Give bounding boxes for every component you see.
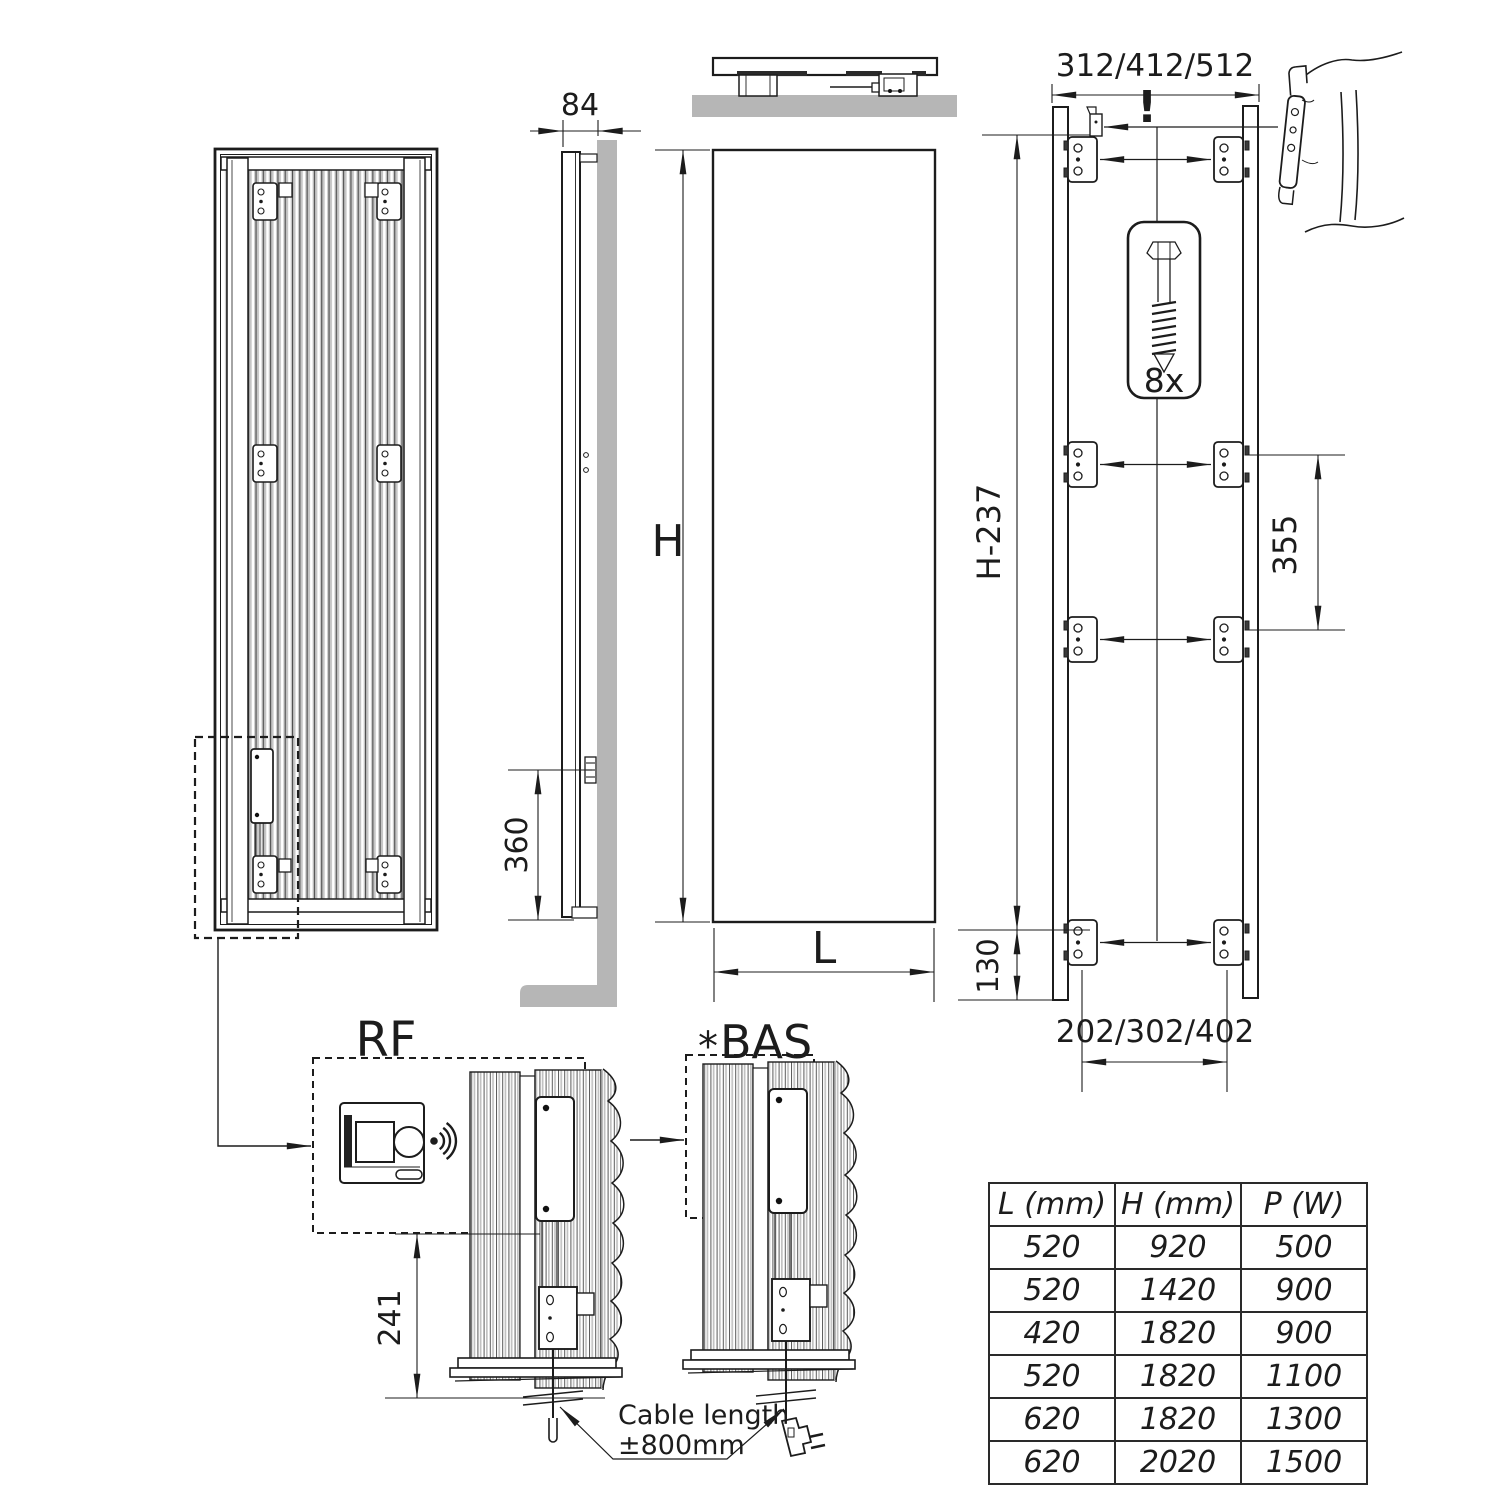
top-bracket-left (739, 75, 777, 96)
spec-table-body: 5209205005201420900420182090052018201100… (989, 1226, 1367, 1484)
dim-rf-241: 241 (373, 1289, 408, 1346)
radiator-top-view (692, 58, 957, 117)
table-cell: 520 (989, 1226, 1115, 1269)
installation-diagram: 84 360 H L (0, 0, 1500, 1500)
table-cell: 900 (1241, 1269, 1367, 1312)
radiator-section-cutaway (450, 1069, 645, 1392)
bracket-hook-tab (365, 183, 378, 197)
dim-bottom-offset: 130 (971, 938, 1005, 993)
control-unit-front (251, 749, 273, 823)
dim-bottom-360: 360 (500, 816, 535, 873)
table-cell: 500 (1241, 1226, 1367, 1269)
rf-remote-thermostat (340, 1103, 424, 1183)
wall-section-top (692, 95, 957, 117)
radiator-side-view: 84 360 (500, 88, 641, 1007)
table-cell: 520 (989, 1355, 1115, 1398)
bracket-hook-tab (366, 859, 378, 872)
radiator-right-rail (404, 158, 425, 924)
cable-note-line2: ±800mm (618, 1430, 745, 1461)
wall-section (597, 140, 617, 1007)
table-cell: 1100 (1241, 1355, 1367, 1398)
dim-rear-height: H-237 (970, 484, 1008, 581)
bottom-wall-connector (572, 907, 597, 918)
radiator-panel-view: H L (651, 150, 935, 1002)
table-row: 52018201100 (989, 1355, 1367, 1398)
detail-leader-line (218, 938, 311, 1146)
wireless-signal-icon (430, 1123, 456, 1159)
bas-star: * (698, 1024, 718, 1070)
top-bracket-right (879, 74, 917, 96)
bas-radiator-section (683, 1061, 878, 1384)
table-cell: 420 (989, 1312, 1115, 1355)
dim-width-L: L (812, 923, 837, 974)
rf-title: RF (356, 1012, 417, 1068)
table-row: 62018201300 (989, 1398, 1367, 1441)
floor-section (520, 985, 597, 1007)
spec-table-header: H (mm) (1115, 1183, 1241, 1226)
dim-depth-84: 84 (561, 88, 599, 123)
spec-table-header: P (W) (1241, 1183, 1367, 1226)
bare-wire-fork-icon (549, 1418, 557, 1442)
table-cell: 620 (989, 1398, 1115, 1441)
table-row: 4201820900 (989, 1312, 1367, 1355)
table-cell: 2020 (1115, 1441, 1241, 1484)
radiator-front-view (195, 149, 437, 1146)
table-cell: 1820 (1115, 1312, 1241, 1355)
table-cell: 920 (1115, 1226, 1241, 1269)
spec-table-head-row: L (mm)H (mm)P (W) (989, 1183, 1367, 1226)
mini-bracket-icon (1087, 107, 1096, 114)
dim-bracket-width: 202/302/402 (1056, 1014, 1254, 1050)
table-cell: 1420 (1115, 1269, 1241, 1312)
spec-table-header: L (mm) (989, 1183, 1115, 1226)
cable-note-line1: Cable length (618, 1400, 789, 1431)
top-wall-connector (580, 154, 597, 162)
dim-rear-width: 312/412/512 (1056, 48, 1254, 84)
warning-mark: ! (1137, 82, 1157, 133)
table-row: 5201420900 (989, 1269, 1367, 1312)
bracket-hook-detail (1275, 52, 1404, 232)
table-cell: 1820 (1115, 1355, 1241, 1398)
table-cell: 900 (1241, 1312, 1367, 1355)
dim-bracket-gap: 355 (1266, 514, 1304, 575)
panel-outline (713, 150, 935, 922)
radiator-top-bar (221, 157, 431, 170)
table-cell: 1500 (1241, 1441, 1367, 1484)
table-cell: 1820 (1115, 1398, 1241, 1441)
control-unit (536, 1097, 574, 1221)
dim-height-H: H (651, 516, 684, 567)
table-cell: 1300 (1241, 1398, 1367, 1441)
radiator-side-profile (562, 152, 580, 917)
table-row: 62020201500 (989, 1441, 1367, 1484)
table-cell: 520 (989, 1269, 1115, 1312)
screw-count-label: 8x (1144, 361, 1185, 400)
bracket-hook-tab (279, 183, 292, 197)
rear-left-rail (1053, 107, 1068, 1000)
bas-title: BAS (720, 1015, 812, 1069)
section-base (458, 1358, 616, 1368)
rear-right-rail (1243, 106, 1258, 998)
radiator-bottom-bar (221, 899, 431, 912)
spec-table: L (mm)H (mm)P (W) 5209205005201420900420… (988, 1182, 1368, 1485)
table-cell: 620 (989, 1441, 1115, 1484)
radiator-left-rail (227, 158, 248, 924)
bracket-hook-tab (279, 859, 291, 872)
connection-bracket (539, 1287, 577, 1349)
table-row: 520920500 (989, 1226, 1367, 1269)
radiator-rear-view: 312/412/512 ! (958, 48, 1404, 1092)
